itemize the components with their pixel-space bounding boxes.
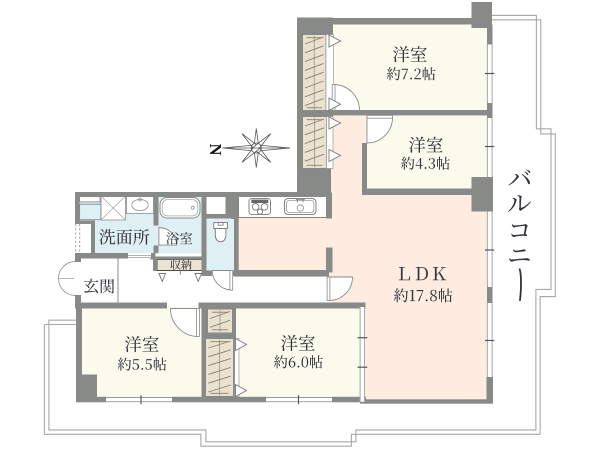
- svg-text:N: N: [206, 144, 225, 156]
